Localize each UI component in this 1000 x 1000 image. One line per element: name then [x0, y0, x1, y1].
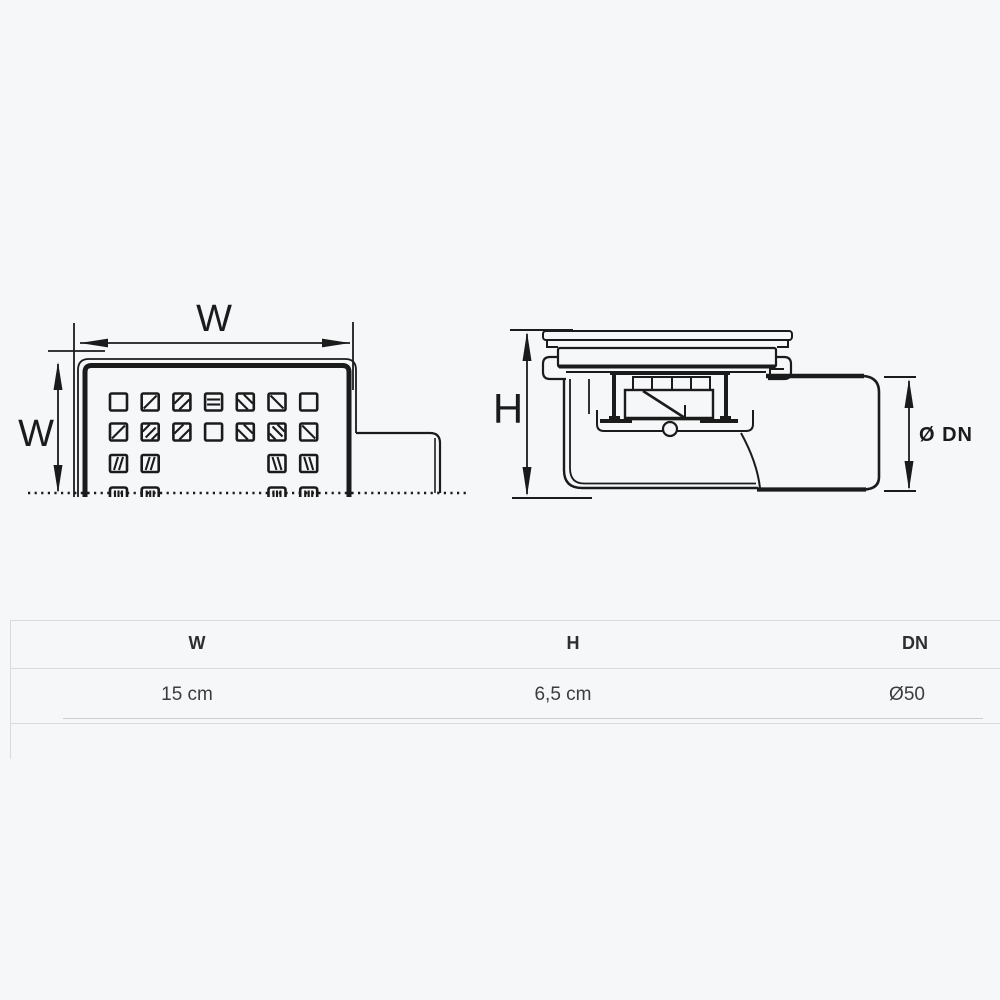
side-view-diameter-label: Ø DN	[919, 424, 973, 446]
value-dn: Ø50	[889, 684, 925, 706]
arrow-right-icon	[322, 339, 350, 348]
column-header-h: H	[567, 633, 580, 654]
table-left-border	[10, 620, 11, 759]
column-header-w: W	[189, 633, 206, 654]
side-view-height-label: H	[493, 385, 523, 432]
top-view-width-horizontal-label: W	[196, 298, 232, 340]
arrow-down-icon	[54, 465, 63, 493]
value-h: 6,5 cm	[534, 684, 591, 706]
value-w: 15 cm	[161, 684, 213, 706]
arrow-up-icon	[905, 379, 914, 408]
top-view-width-vertical-label: W	[18, 413, 54, 455]
trap-ball	[663, 422, 677, 436]
grate-top-view-diagram: W W	[18, 298, 470, 497]
table-header-separator	[10, 668, 1000, 669]
drain-side-view-diagram: H	[493, 330, 973, 498]
dn-dimension	[884, 377, 916, 491]
grate-frame	[78, 359, 356, 497]
column-header-dn: DN	[902, 633, 928, 654]
table-row-border	[10, 723, 1000, 724]
w-vertical-dimension	[54, 362, 63, 493]
table-row-underline	[63, 718, 983, 719]
odor-trap-insert	[597, 373, 753, 436]
table-top-border	[10, 620, 1000, 621]
grate-perforation-pattern	[110, 394, 317, 498]
arrow-up-icon	[54, 362, 63, 390]
arrow-down-icon	[523, 467, 532, 496]
arrow-down-icon	[905, 461, 914, 490]
drain-spec-page: W W	[0, 0, 1000, 1000]
side-outlet-stub	[356, 433, 440, 493]
technical-drawing: W W	[0, 0, 1000, 620]
outlet-pipe	[757, 369, 879, 490]
arrow-left-icon	[80, 339, 108, 348]
arrow-up-icon	[523, 332, 532, 361]
